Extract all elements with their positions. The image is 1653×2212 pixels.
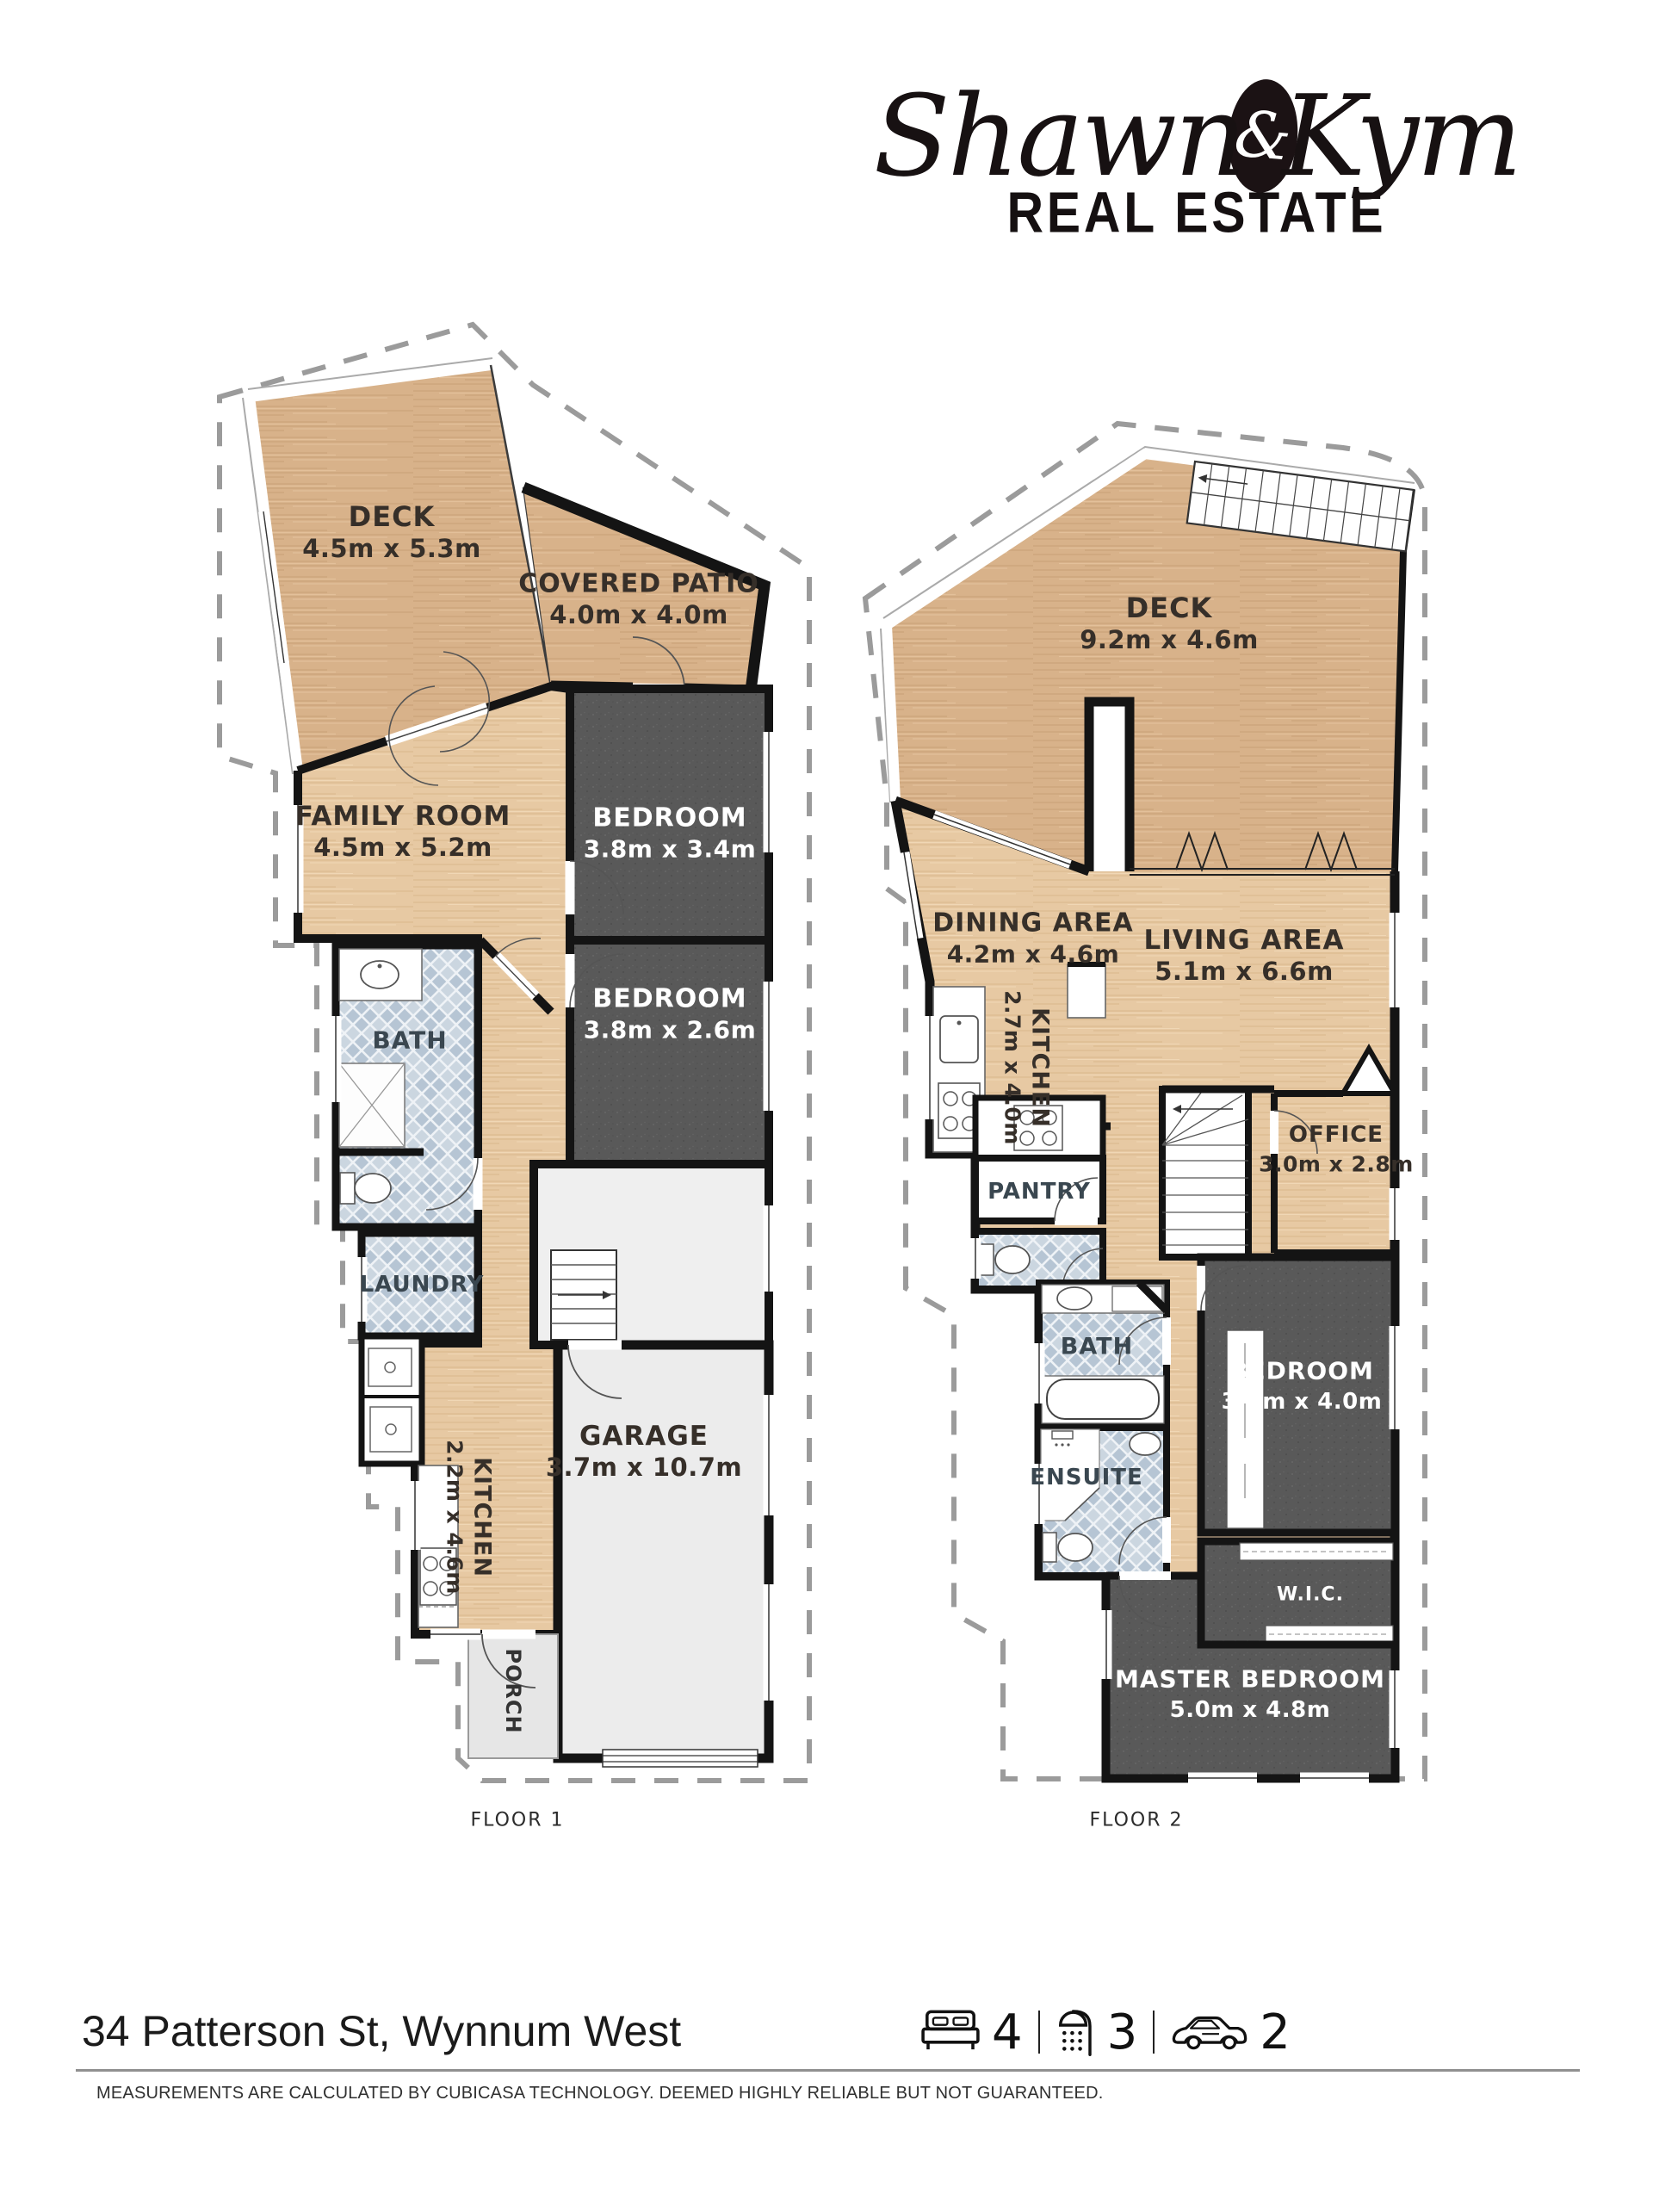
label-living-f2: LIVING AREA xyxy=(1143,925,1344,956)
dims-bedroom-f2: 3.0m x 4.0m xyxy=(1222,1389,1383,1415)
floor2-caption: FLOOR 2 xyxy=(1089,1810,1183,1831)
label-pantry-f2: PANTRY xyxy=(987,1179,1091,1205)
dims-master-f2: 5.0m x 4.8m xyxy=(1170,1697,1331,1723)
dims-patio-f1: 4.0m x 4.0m xyxy=(549,600,728,629)
dims-bedroom1-f1: 3.8m x 3.4m xyxy=(584,835,757,864)
label-bedroom2-f1: BEDROOM xyxy=(592,984,746,1014)
floor1-caption: FLOOR 1 xyxy=(470,1810,564,1831)
dims-deck-f1: 4.5m x 5.3m xyxy=(302,534,481,563)
shower-icon xyxy=(1056,2007,1097,2057)
dims-bedroom2-f1: 3.8m x 2.6m xyxy=(584,1016,757,1044)
disclaimer-text: MEASUREMENTS ARE CALCULATED BY CUBICASA … xyxy=(96,2084,1103,2104)
property-address: 34 Patterson St, Wynnum West xyxy=(82,2006,681,2056)
label-bedroom-f2: BEDROOM xyxy=(1229,1357,1374,1385)
floor1-plan: DECK 4.5m x 5.3m COVERED PATIO 4.0m x 4.… xyxy=(220,325,809,1831)
dims-kitchen-f1: 2.2m x 4.6m xyxy=(443,1440,467,1595)
beds-count: 4 xyxy=(992,2004,1023,2060)
label-dining-f2: DINING AREA xyxy=(932,908,1134,939)
floorplan-canvas: DECK 4.5m x 5.3m COVERED PATIO 4.0m x 4.… xyxy=(0,0,1653,2212)
car-icon xyxy=(1170,2012,1249,2052)
dims-garage-f1: 3.7m x 10.7m xyxy=(546,1453,742,1482)
label-garage-f1: GARAGE xyxy=(579,1421,709,1452)
dims-dining-f2: 4.2m x 4.6m xyxy=(947,940,1120,969)
label-deck-f2: DECK xyxy=(1126,592,1213,624)
stats-divider xyxy=(1153,2011,1155,2054)
room-ensuite-f2 xyxy=(1039,1428,1167,1576)
label-master-f2: MASTER BEDROOM xyxy=(1115,1665,1385,1694)
utility-nook-f1 xyxy=(362,1336,422,1464)
label-family-f1: FAMILY ROOM xyxy=(295,801,511,832)
label-kitchen-f1: KITCHEN xyxy=(469,1457,496,1577)
garage-roller-door xyxy=(603,1750,758,1767)
label-kitchen-f2: KITCHEN xyxy=(1027,1007,1054,1128)
agency-logo: Shawn & Kym REAL ESTATE xyxy=(826,79,1567,244)
label-laundry-f1: LAUNDRY xyxy=(360,1272,485,1298)
footer-divider xyxy=(76,2069,1580,2072)
dims-office-f2: 3.0m x 2.8m xyxy=(1259,1152,1414,1177)
property-stats: 4 3 2 xyxy=(919,1999,1291,2065)
cars-count: 2 xyxy=(1260,2004,1291,2060)
bed-icon xyxy=(919,2010,981,2054)
dims-family-f1: 4.5m x 5.2m xyxy=(313,833,492,862)
dims-deck-f2: 9.2m x 4.6m xyxy=(1080,625,1259,654)
logo-second-name: Kym xyxy=(1282,86,1520,187)
stairs-f1 xyxy=(551,1250,616,1340)
label-wic-f2: W.I.C. xyxy=(1277,1584,1344,1606)
label-patio-f1: COVERED PATIO xyxy=(518,569,759,599)
room-bath-f1 xyxy=(336,945,478,1227)
stats-divider xyxy=(1038,2011,1040,2054)
baths-count: 3 xyxy=(1107,2004,1138,2060)
dims-living-f2: 5.1m x 6.6m xyxy=(1155,957,1334,986)
label-bedroom1-f1: BEDROOM xyxy=(592,803,746,833)
label-porch-f1: PORCH xyxy=(501,1648,525,1733)
label-bath-f2: BATH xyxy=(1061,1334,1133,1360)
room-bedroom2-f1 xyxy=(570,940,769,1164)
label-office-f2: OFFICE xyxy=(1289,1122,1384,1148)
label-ensuite-f2: ENSUITE xyxy=(1030,1465,1143,1490)
stairs-f2 xyxy=(1162,1089,1248,1257)
room-garage-f1 xyxy=(558,1345,769,1758)
dims-kitchen-f2: 2.7m x 4.0m xyxy=(1000,990,1025,1145)
label-deck-f1: DECK xyxy=(349,500,436,533)
logo-first-name: Shawn xyxy=(874,86,1244,187)
floor2-plan: DECK 9.2m x 4.6m DINING AREA 4.2m x 4.6m… xyxy=(865,424,1425,1831)
label-bath-f1: BATH xyxy=(372,1026,447,1055)
